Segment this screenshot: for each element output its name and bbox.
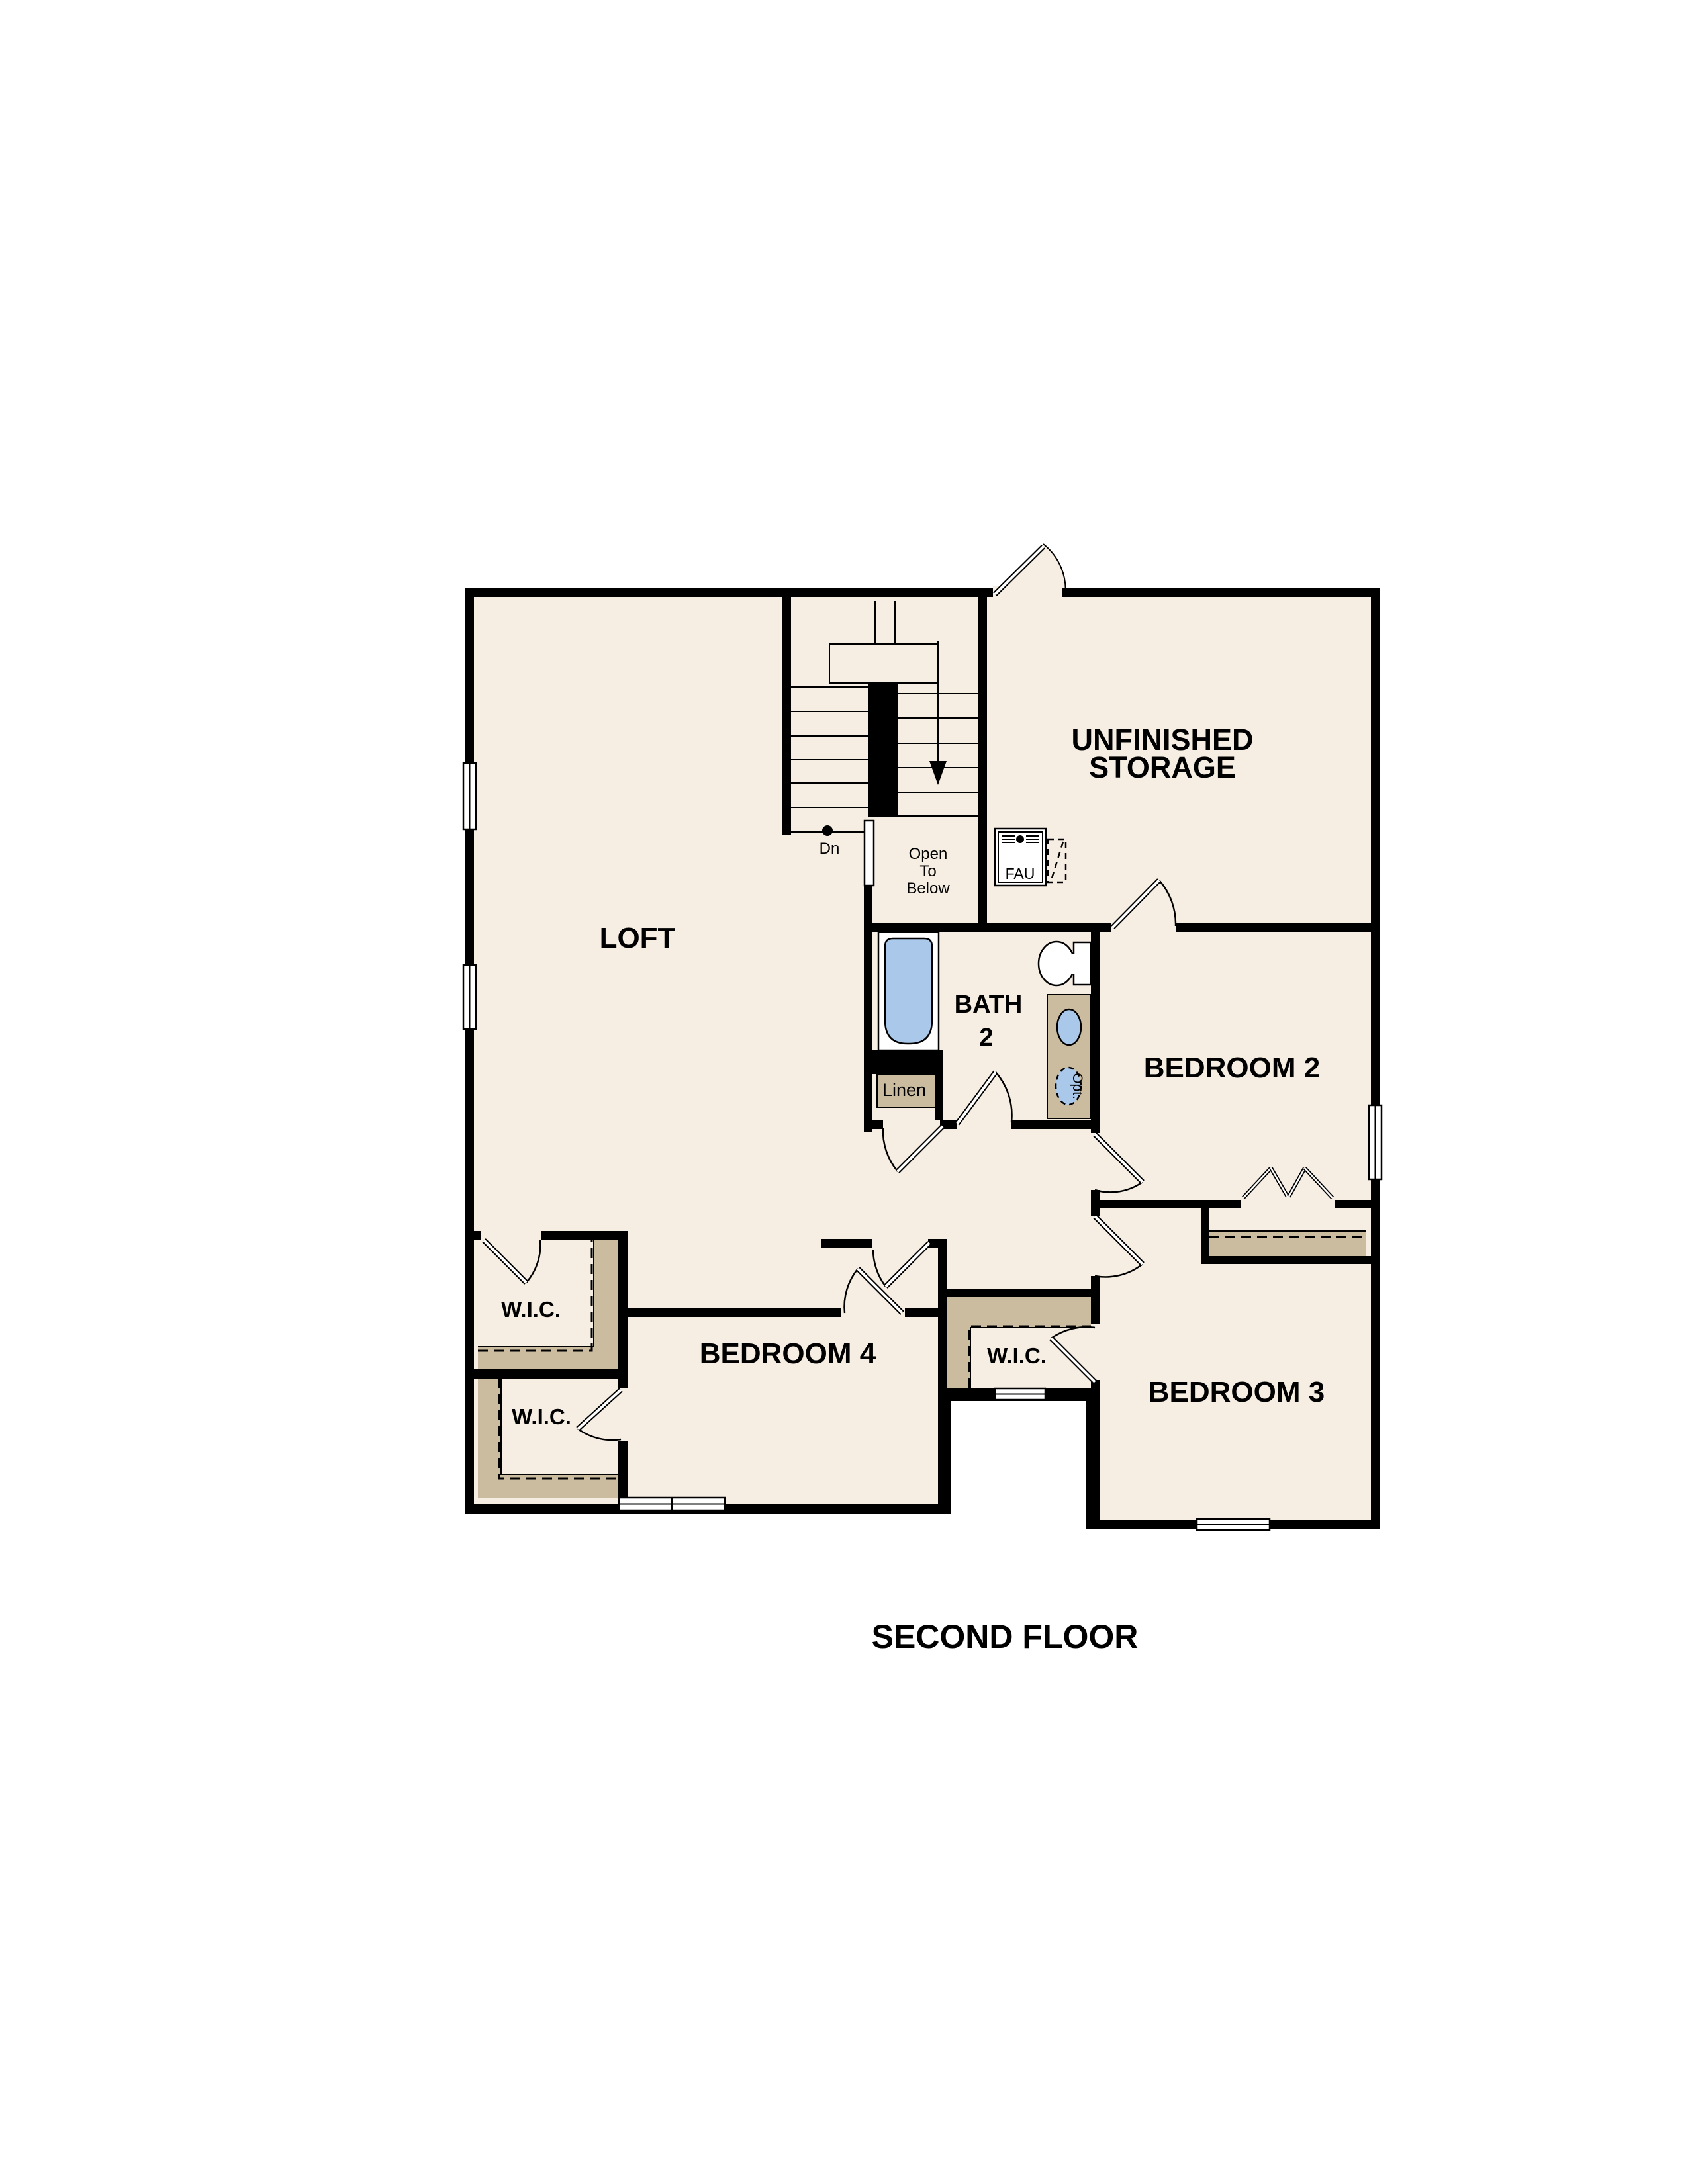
bath-bedroom2-wall-seg1 bbox=[1091, 932, 1100, 1133]
loft-window-2 bbox=[463, 965, 476, 1029]
bedroom2-closet-bottom-wall bbox=[1201, 1256, 1376, 1264]
bedroom3-label: BEDROOM 3 bbox=[1149, 1376, 1325, 1408]
bath-label-line2: 2 bbox=[979, 1024, 993, 1052]
bedroom3-window bbox=[1197, 1519, 1270, 1530]
stair-left-wall bbox=[782, 592, 791, 835]
bathtub bbox=[885, 938, 932, 1044]
bedroom4-label: BEDROOM 4 bbox=[700, 1338, 876, 1370]
stair-center-wall bbox=[868, 683, 898, 817]
storage-label-line2: STORAGE bbox=[1089, 751, 1236, 784]
wic3-top-wall bbox=[947, 1289, 1100, 1297]
toilet bbox=[1039, 942, 1091, 985]
bedroom4-top-wall-seg1 bbox=[628, 1308, 841, 1317]
bath-bottom-wall-seg1 bbox=[864, 1120, 883, 1129]
open-to-below-line1: Open bbox=[909, 845, 948, 863]
wic3-shelf-band-vertical bbox=[947, 1297, 970, 1388]
open-to-below-line3: Below bbox=[906, 880, 950, 897]
vanity-sink bbox=[1057, 1009, 1081, 1045]
bedroom2-top-wall bbox=[1176, 923, 1376, 932]
floor-plan-svg: LOFT UNFINISHED STORAGE BATH 2 BEDROOM 2… bbox=[0, 0, 1688, 2184]
linen-right-wall bbox=[935, 1074, 943, 1120]
wic1-shelf-band-vertical bbox=[594, 1240, 618, 1369]
wic-divider-wall bbox=[469, 1369, 628, 1379]
open-to-below-railing bbox=[865, 821, 874, 886]
wic3-window bbox=[995, 1388, 1045, 1400]
bedroom2-closet-wall-seg2 bbox=[1335, 1200, 1376, 1208]
bedroom4-double-window bbox=[619, 1498, 725, 1510]
bedroom2-closet-left-wall bbox=[1201, 1200, 1209, 1264]
wic1-label: W.I.C. bbox=[501, 1297, 561, 1322]
wic3-label: W.I.C. bbox=[987, 1343, 1047, 1368]
fau-label: FAU bbox=[1006, 865, 1035, 882]
bath-top-wall bbox=[864, 923, 1111, 932]
loft-window-1 bbox=[463, 763, 476, 829]
wic1-top-wall-seg2 bbox=[541, 1231, 628, 1240]
bedroom2-label: BEDROOM 2 bbox=[1144, 1052, 1320, 1084]
loft-label: LOFT bbox=[600, 922, 676, 954]
tub-foot-wall bbox=[872, 1050, 943, 1074]
bath-left-wall bbox=[864, 884, 872, 1132]
linen-label: Linen bbox=[882, 1080, 926, 1100]
floor-plan-page: LOFT UNFINISHED STORAGE BATH 2 BEDROOM 2… bbox=[0, 0, 1688, 2184]
bath-label-line1: BATH bbox=[955, 991, 1023, 1019]
stair-down-start-dot bbox=[822, 825, 833, 836]
hall-wall-seg1 bbox=[821, 1239, 872, 1248]
bedroom2-closet-shelf-band bbox=[1209, 1231, 1366, 1256]
page-title: SECOND FLOOR bbox=[872, 1618, 1139, 1655]
wic2-label: W.I.C. bbox=[512, 1404, 571, 1429]
optional-sink-label: Opt. bbox=[1070, 1073, 1085, 1099]
open-to-below-line2: To bbox=[919, 862, 936, 880]
bedroom4-left-wall-upper bbox=[618, 1240, 628, 1388]
stairs-down-label: Dn bbox=[820, 840, 840, 858]
bath-bottom-wall-seg3 bbox=[1011, 1120, 1100, 1129]
bedroom2-window bbox=[1369, 1105, 1382, 1179]
fau-grille bbox=[1002, 835, 1039, 843]
stair-right-wall bbox=[978, 592, 987, 923]
bedroom2-closet-wall-seg1 bbox=[1100, 1200, 1241, 1208]
bedroom3-left-wall-upper bbox=[1091, 1276, 1100, 1324]
bath-bedroom2-wall-seg2 bbox=[1091, 1190, 1100, 1216]
